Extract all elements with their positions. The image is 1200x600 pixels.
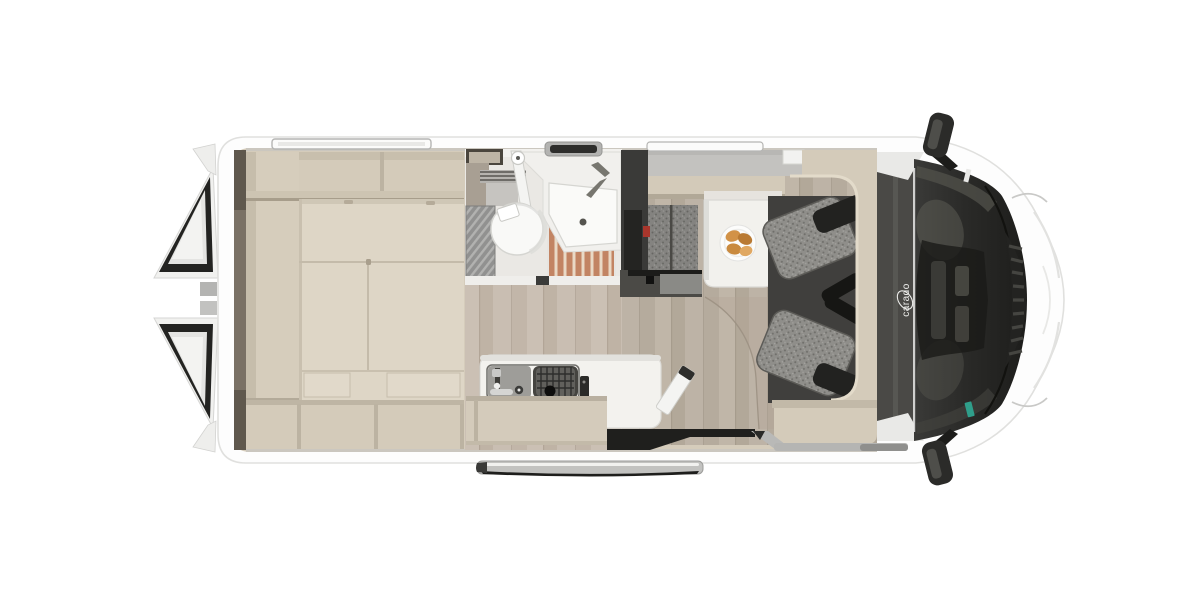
svg-text:carado: carado — [901, 283, 912, 317]
